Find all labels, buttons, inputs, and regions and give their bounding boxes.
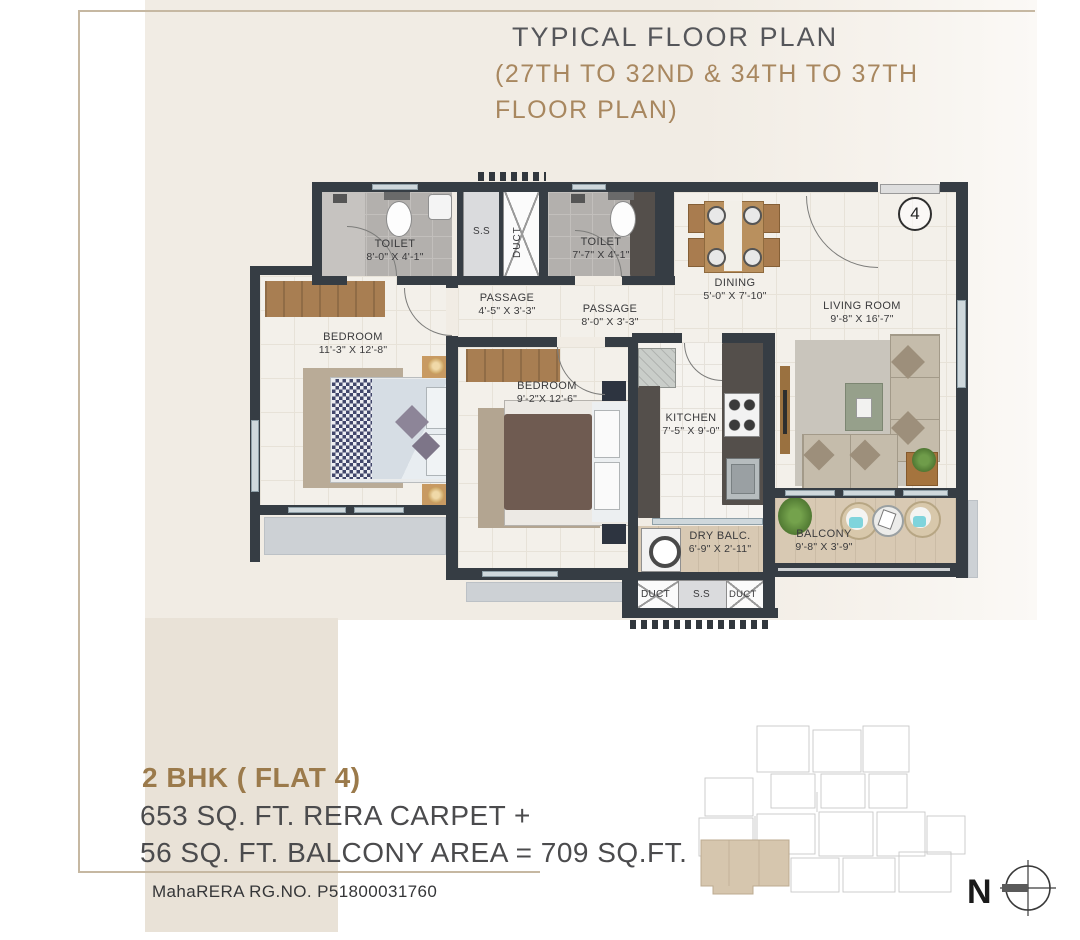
- drybalc-dims: 6'-9" X 2'-11": [689, 543, 752, 555]
- compass: N: [955, 848, 1075, 930]
- balcony-slider-2: [843, 490, 895, 496]
- wall-toilet2-right: [655, 182, 674, 277]
- kitchen-name: KITCHEN: [662, 412, 719, 424]
- wall-bedroom1-left: [250, 266, 260, 562]
- area-line-1: 653 SQ. FT. RERA CARPET +: [140, 800, 531, 832]
- dining-plate-4: [743, 248, 762, 267]
- key-plan-highlighted-unit: [701, 840, 789, 894]
- balcony-slider-1: [785, 490, 835, 496]
- room-label-drybalc: DRY BALC. 6'-9" X 2'-11": [689, 530, 752, 555]
- entry-door-leaf: [880, 184, 940, 194]
- bedroom2-nightstand-top: [602, 381, 626, 401]
- dining-dims: 5'-0" X 7'-10": [703, 290, 766, 302]
- wall-ss-duct-mid: [499, 182, 503, 280]
- compass-north-pointer: [1002, 884, 1028, 892]
- wall-bedroom-divider: [446, 336, 458, 568]
- living-dims: 9'-8" X 16'-7": [823, 313, 901, 325]
- wall-toilet-row-b: [397, 276, 575, 285]
- kitchen-sink-basin: [731, 464, 755, 494]
- balcony-railing-line: [778, 568, 950, 571]
- toilet1-window: [372, 184, 418, 190]
- dining-table-runner: [724, 201, 742, 271]
- bedroom2-nightstand-bottom: [602, 524, 626, 544]
- balcony-chair-2-accent: [913, 516, 926, 527]
- bedroom2-wardrobe: [466, 349, 560, 382]
- bedroom2-name: BEDROOM: [517, 380, 577, 392]
- kitchen-dims: 7'-5" X 9'-0": [662, 425, 719, 437]
- toilet1-cistern: [384, 192, 410, 200]
- bedroom2-window: [482, 571, 558, 577]
- bedroom1-window-2: [354, 507, 404, 513]
- wall-toilet-row-c: [622, 276, 675, 285]
- toilet2-name: TOILET: [572, 236, 629, 248]
- passage2-name: PASSAGE: [581, 303, 638, 315]
- toilet2-window: [572, 184, 606, 190]
- bedroom1-lamp-bottom: [428, 487, 444, 503]
- balcony-name: BALCONY: [795, 528, 852, 540]
- ss-top-label: S.S: [473, 226, 490, 237]
- passage1-dims: 4'-5" X 3'-3": [478, 305, 535, 317]
- wall-bedroom1-step: [250, 266, 318, 275]
- page-subtitle-line1: (27TH TO 32ND & 34TH TO 37TH: [495, 60, 919, 89]
- toilet2-cistern: [608, 192, 634, 200]
- passage1-name: PASSAGE: [478, 292, 535, 304]
- duct-br-label: DUCT: [729, 589, 757, 600]
- toilet1-washbasin: [428, 194, 452, 220]
- dining-plate-2: [743, 206, 762, 225]
- page-title: TYPICAL FLOOR PLAN: [512, 22, 838, 53]
- area-line-2: 56 SQ. FT. BALCONY AREA = 709 SQ.FT.: [140, 837, 687, 869]
- key-plan: [695, 722, 975, 907]
- drybalc-name: DRY BALC.: [689, 530, 752, 542]
- unit-number-badge: 4: [898, 197, 932, 231]
- wall-duct-row-left: [622, 578, 632, 618]
- toilet2-dims: 7'-7" X 4'-1": [572, 249, 629, 261]
- dining-name: DINING: [703, 277, 766, 289]
- room-label-kitchen: KITCHEN 7'-5" X 9'-0": [662, 412, 719, 437]
- ledge-below-bedroom2: [466, 582, 628, 602]
- room-label-toilet2: TOILET 7'-7" X 4'-1": [572, 236, 629, 261]
- toilet1-shower-head: [333, 194, 347, 203]
- bedroom1-dims: 11'-3" X 12'-8": [319, 344, 388, 356]
- toilet2-shower-head: [571, 194, 585, 203]
- bedroom1-side-window: [251, 420, 259, 492]
- tv-screen: [783, 390, 787, 434]
- living-name: LIVING ROOM: [823, 300, 901, 312]
- brochure-page: TYPICAL FLOOR PLAN (27TH TO 32ND & 34TH …: [0, 0, 1080, 940]
- wall-bedroom2-top-a: [446, 337, 557, 347]
- kitchen-counter-left: [638, 386, 660, 518]
- ledge-right-of-balcony: [968, 500, 978, 578]
- wall-drybalc-bottom: [628, 572, 775, 580]
- balcony-dims: 9'-8" X 3'-9": [795, 541, 852, 553]
- drybalc-slider: [652, 518, 763, 525]
- room-label-balcony: BALCONY 9'-8" X 3'-9": [795, 528, 852, 553]
- dining-plate-1: [707, 206, 726, 225]
- living-side-window: [957, 300, 966, 388]
- wall-toilet1-left: [312, 182, 322, 276]
- bedroom2-pillow-bottom: [594, 462, 620, 510]
- bedroom1-name: BEDROOM: [319, 331, 388, 343]
- frame-rule-left: [78, 10, 80, 871]
- washing-machine-drum: [649, 536, 681, 568]
- wall-toilet2-left: [539, 182, 548, 276]
- unit-number: 4: [910, 204, 919, 224]
- rera-registration: MahaRERA RG.NO. P51800031760: [152, 882, 437, 902]
- wall-ss-left: [457, 182, 463, 280]
- kitchen-stove: [724, 393, 760, 437]
- bedroom2-dims: 9'-2"X 12'-6": [517, 393, 577, 405]
- room-label-bedroom2: BEDROOM 9'-2"X 12'-6": [517, 380, 577, 405]
- passage2-dims: 8'-0" X 3'-3": [581, 316, 638, 328]
- unit-title: 2 BHK ( FLAT 4): [142, 762, 361, 794]
- duct-teeth-bottom: [630, 620, 768, 629]
- page-subtitle-line2: FLOOR PLAN): [495, 96, 678, 125]
- bedroom1-lamp-top: [428, 358, 444, 374]
- living-plant: [912, 448, 936, 472]
- toilet1-wc: [386, 201, 412, 237]
- balcony-slider-3: [903, 490, 948, 496]
- compass-north-label: N: [967, 873, 992, 911]
- coffee-table-tray: [856, 398, 872, 418]
- dining-plate-3: [707, 248, 726, 267]
- balcony-chair-1-accent: [849, 517, 863, 528]
- room-label-dining: DINING 5'-0" X 7'-10": [703, 277, 766, 302]
- bedroom2-blanket: [504, 414, 592, 510]
- ss-bottom-label: S.S: [693, 589, 710, 600]
- room-label-living: LIVING ROOM 9'-8" X 16'-7": [823, 300, 901, 325]
- room-label-passage2: PASSAGE 8'-0" X 3'-3": [581, 303, 638, 328]
- toilet1-dims: 8'-0" X 4'-1": [366, 251, 423, 263]
- duct-top-label: DUCT: [512, 208, 523, 258]
- toilet1-name: TOILET: [366, 238, 423, 250]
- bedroom2-pillow-top: [594, 410, 620, 458]
- room-label-toilet1: TOILET 8'-0" X 4'-1": [366, 238, 423, 263]
- bedroom1-window-1: [288, 507, 346, 513]
- toilet2-wc: [610, 201, 636, 237]
- wall-duct-row-bottom: [622, 608, 778, 618]
- ledge-below-bedroom1: [264, 517, 446, 555]
- frame-rule-bottom: [78, 871, 540, 873]
- frame-rule-top: [78, 10, 1035, 12]
- wall-toilet-row-a: [312, 276, 347, 285]
- wall-bedroom-divider-top: [446, 276, 458, 288]
- kitchen-corner-unit: [638, 348, 676, 388]
- duct-teeth-top: [478, 172, 546, 181]
- room-label-bedroom1: BEDROOM 11'-3" X 12'-8": [319, 331, 388, 356]
- duct-bl-label: DUCT: [641, 589, 670, 600]
- room-label-passage1: PASSAGE 4'-5" X 3'-3": [478, 292, 535, 317]
- toilet2-shower-marble: [630, 192, 655, 276]
- bedroom1-wardrobe: [265, 281, 385, 317]
- wall-kitchen-top-a: [632, 333, 682, 343]
- bedroom1-bed-runner: [332, 379, 372, 479]
- bedroom1-pillow-top: [426, 387, 448, 429]
